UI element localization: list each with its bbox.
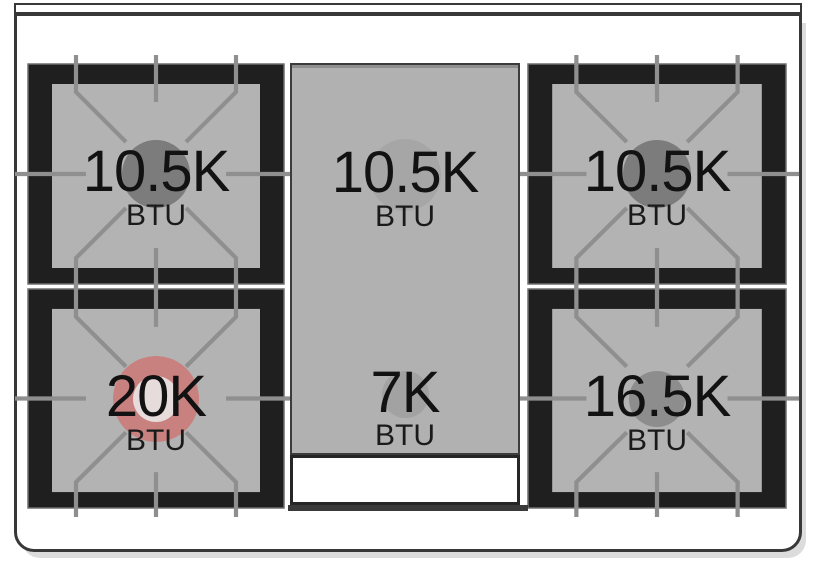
griddle-plate: 10.5K BTU 7K BTU	[290, 63, 520, 455]
cooktop-btu-diagram: 10.5K BTU 10.5K BTU 20K BTU 16.5K BTU 10…	[0, 0, 816, 568]
burner-bottom-right: 16.5K BTU	[528, 289, 786, 508]
burner-top-right: 10.5K BTU	[528, 64, 786, 284]
griddle-front-panel-shadow	[288, 505, 528, 511]
btu-value: 7K	[292, 364, 518, 422]
btu-value: 20K	[28, 368, 284, 426]
btu-value: 10.5K	[292, 144, 518, 202]
btu-value: 10.5K	[528, 143, 786, 201]
btu-unit: BTU	[292, 202, 518, 232]
griddle-front-panel	[290, 455, 520, 505]
btu-unit: BTU	[28, 426, 284, 456]
burner-top-left: 10.5K BTU	[28, 64, 284, 284]
burner-bottom-left: 20K BTU	[28, 289, 284, 508]
btu-value: 16.5K	[528, 368, 786, 426]
btu-unit: BTU	[292, 421, 518, 451]
griddle-burner-rear: 10.5K BTU	[292, 65, 518, 285]
btu-value: 10.5K	[28, 143, 284, 201]
btu-unit: BTU	[28, 201, 284, 231]
btu-unit: BTU	[528, 426, 786, 456]
btu-unit: BTU	[528, 201, 786, 231]
